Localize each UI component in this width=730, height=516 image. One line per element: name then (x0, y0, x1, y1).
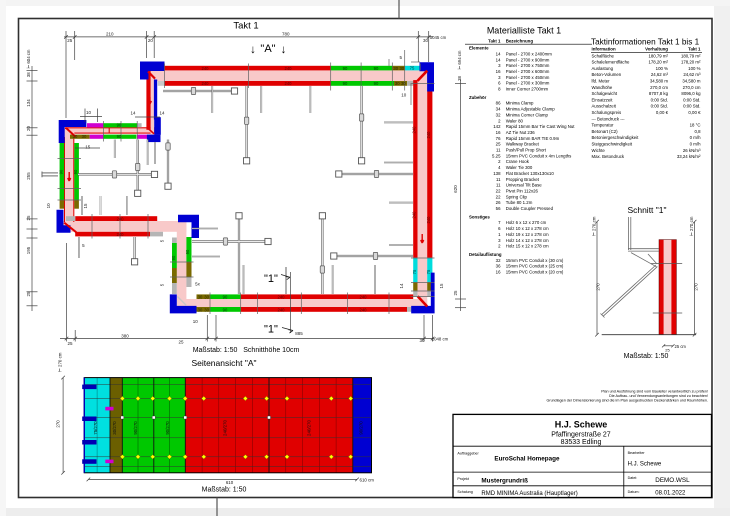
svg-text:270,0 cm: 270,0 cm (650, 85, 668, 90)
svg-text:1048 cm: 1048 cm (432, 337, 449, 342)
svg-text:10: 10 (193, 319, 199, 324)
svg-text:15mm PVC Conduit x (25 cm): 15mm PVC Conduit x (25 cm) (506, 264, 564, 269)
svg-text:76: 76 (496, 136, 501, 141)
svg-text:90: 90 (185, 249, 190, 254)
svg-text:DEMO.WSL: DEMO.WSL (655, 477, 690, 484)
svg-text:90: 90 (374, 81, 379, 86)
svg-text:Detailauflistung: Detailauflistung (469, 252, 502, 257)
svg-text:180,79 m²: 180,79 m² (648, 53, 668, 58)
svg-text:33,24 kN/m²: 33,24 kN/m² (677, 154, 701, 159)
svg-text:38: 38 (457, 76, 462, 81)
svg-text:Betonart (C2): Betonart (C2) (592, 129, 619, 134)
svg-text:16: 16 (496, 130, 501, 135)
svg-text:25: 25 (67, 38, 73, 43)
svg-text:38: 38 (26, 72, 31, 77)
svg-text:24,62 m³: 24,62 m³ (683, 72, 701, 77)
svg-text:Propping Bracket: Propping Bracket (506, 177, 540, 182)
svg-text:34,580 m: 34,580 m (682, 79, 700, 84)
svg-text:--- Betondruck ---: --- Betondruck --- (592, 116, 626, 121)
svg-text:0:00 Std.: 0:00 Std. (651, 97, 668, 102)
svg-text:780: 780 (282, 31, 290, 36)
svg-text:240: 240 (202, 81, 210, 86)
svg-text:11: 11 (496, 148, 501, 153)
svg-text:75: 75 (412, 269, 417, 274)
svg-text:Panel - 2700 x 750mm: Panel - 2700 x 750mm (506, 63, 550, 68)
svg-text:0:00 Std.: 0:00 Std. (683, 97, 700, 102)
svg-text:Plan und Ausführung sind vom B: Plan und Ausführung sind vom Bauleiter v… (601, 390, 708, 394)
svg-text:26 kN/m³: 26 kN/m³ (683, 148, 701, 153)
svg-text:30: 30 (204, 295, 209, 300)
svg-text:32: 32 (496, 258, 501, 263)
svg-text:Betoniergeschwindigkeit: Betoniergeschwindigkeit (592, 135, 640, 140)
svg-text:885: 885 (295, 331, 303, 336)
svg-text:240: 240 (412, 211, 417, 219)
svg-text:18 °C: 18 °C (690, 123, 701, 128)
svg-text:Bezeichnung: Bezeichnung (506, 39, 534, 44)
svg-text:240: 240 (426, 131, 431, 139)
svg-text:255: 255 (26, 172, 31, 180)
svg-text:240: 240 (117, 232, 125, 237)
svg-text:90/270: 90/270 (165, 421, 170, 435)
svg-text:Zubehör: Zubehör (469, 95, 487, 100)
svg-text:25: 25 (496, 142, 501, 147)
svg-text:30: 30 (82, 134, 87, 139)
svg-text:90: 90 (117, 134, 122, 139)
svg-text:Waler Tie 300: Waler Tie 300 (506, 165, 533, 170)
svg-text:25 cm: 25 cm (675, 344, 687, 349)
svg-text:270: 270 (56, 420, 61, 428)
svg-text:Holz 14 x 12 x 278 cm: Holz 14 x 12 x 278 cm (506, 238, 549, 243)
svg-text:⊢ 270 cm: ⊢ 270 cm (591, 216, 596, 236)
svg-text:142: 142 (493, 124, 501, 129)
svg-text:Holz 10 x 12 x 278 cm: Holz 10 x 12 x 278 cm (506, 226, 549, 231)
svg-text:36: 36 (496, 264, 501, 269)
svg-text:195: 195 (26, 246, 31, 254)
svg-text:Schalelementfläche: Schalelementfläche (592, 60, 630, 65)
svg-text:100 %: 100 % (656, 66, 668, 71)
svg-text:240/270: 240/270 (307, 420, 312, 436)
svg-text:30: 30 (419, 338, 425, 343)
svg-text:Walkway Bracket: Walkway Bracket (506, 142, 540, 147)
svg-text:15: 15 (83, 203, 88, 209)
svg-text:Panel - 2700 x 600mm: Panel - 2700 x 600mm (506, 69, 550, 74)
svg-text:Takt 1: Takt 1 (233, 20, 258, 31)
svg-text:25: 25 (665, 348, 670, 353)
svg-text:32: 32 (496, 112, 501, 117)
svg-text:240: 240 (412, 126, 417, 134)
svg-text:Auslastung: Auslastung (592, 66, 614, 71)
svg-text:Rapid 15mm BAR TIE 0.9m: Rapid 15mm BAR TIE 0.9m (506, 136, 560, 141)
svg-text:Rapid 15mm Bar Tie Cast Wing N: Rapid 15mm Bar Tie Cast Wing Nut (506, 124, 576, 129)
svg-text:25: 25 (67, 341, 73, 346)
svg-text:25: 25 (26, 215, 31, 221)
svg-text:15mm PVC Conduit x (30 cm): 15mm PVC Conduit x (30 cm) (506, 258, 564, 263)
svg-text:83533 Edling: 83533 Edling (561, 439, 602, 446)
svg-text:Panel - 2700 x 2400mm: Panel - 2700 x 2400mm (506, 51, 553, 56)
svg-text:100 %: 100 % (688, 66, 700, 71)
svg-text:30: 30 (395, 81, 400, 86)
svg-text:75: 75 (426, 269, 431, 274)
svg-text:↓: ↓ (281, 44, 287, 56)
svg-text:H.J. Schewe: H.J. Schewe (555, 420, 608, 430)
svg-text:H.J. Schewe: H.J. Schewe (628, 462, 662, 468)
svg-text:86: 86 (496, 101, 501, 106)
svg-text:10: 10 (86, 110, 92, 115)
svg-text:Projekt: Projekt (457, 477, 468, 481)
svg-text:14: 14 (496, 51, 501, 56)
svg-text:26: 26 (496, 200, 501, 205)
svg-text:240: 240 (202, 66, 210, 71)
svg-text:30: 30 (399, 66, 404, 71)
svg-text:Schalgewicht: Schalgewicht (592, 91, 618, 96)
svg-text:240: 240 (360, 295, 368, 300)
svg-text:16: 16 (496, 69, 501, 74)
svg-text:EuroSchal Homepage: EuroSchal Homepage (494, 456, 560, 463)
svg-text:14: 14 (496, 57, 501, 62)
svg-text:0 m/h: 0 m/h (690, 142, 701, 147)
svg-text:90: 90 (58, 169, 63, 174)
svg-text:Steiggeschwindigkeit: Steiggeschwindigkeit (592, 142, 633, 147)
svg-text:Bearbeiter: Bearbeiter (628, 451, 646, 455)
svg-text:180,79 m²: 180,79 m² (681, 53, 701, 58)
svg-text:Schalungspreis: Schalungspreis (592, 110, 623, 115)
svg-text:90: 90 (223, 307, 228, 312)
svg-text:Maßstab: 1:50: Maßstab: 1:50 (624, 353, 669, 360)
svg-text:14: 14 (399, 283, 404, 289)
svg-text:⊢ 270 cm: ⊢ 270 cm (58, 352, 63, 372)
svg-text:Einsatzzeit: Einsatzzeit (592, 97, 614, 102)
svg-text:134: 134 (26, 99, 31, 107)
svg-text:Panel - 2700 x 450mm: Panel - 2700 x 450mm (506, 75, 550, 80)
svg-text:56: 56 (496, 206, 501, 211)
svg-text:Flat Bracket 130x130x10: Flat Bracket 130x130x10 (506, 171, 555, 176)
svg-text:Vorhaltung: Vorhaltung (645, 47, 668, 52)
svg-text:Ausschalzeit: Ausschalzeit (592, 104, 617, 109)
svg-text:Maßstab: 1:50 Schnitthöhe 10: Maßstab: 1:50 Schnitthöhe 10cm (193, 347, 300, 354)
svg-text:30: 30 (73, 134, 78, 139)
svg-text:Spring Clip: Spring Clip (506, 194, 528, 199)
svg-text:lfd. Meter: lfd. Meter (592, 79, 611, 84)
svg-text:178,20 m²: 178,20 m² (648, 60, 668, 65)
svg-text:Tube 80 1.2m: Tube 80 1.2m (506, 200, 533, 205)
svg-text:11: 11 (496, 177, 501, 182)
svg-text:Sonstiges: Sonstiges (469, 214, 490, 219)
svg-text:Max. Betondruck: Max. Betondruck (592, 154, 625, 159)
svg-text:75: 75 (410, 66, 415, 71)
svg-text:20: 20 (148, 38, 154, 43)
svg-text:25: 25 (178, 340, 184, 345)
svg-text:90: 90 (171, 255, 176, 260)
svg-text:Push/Pull Prop Short: Push/Pull Prop Short (506, 148, 547, 153)
svg-text:Schalung: Schalung (457, 490, 472, 494)
svg-text:Inner Corner 2700mm: Inner Corner 2700mm (506, 87, 549, 92)
svg-text:10: 10 (401, 93, 407, 98)
svg-text:240: 240 (285, 66, 293, 71)
svg-text:↓: ↓ (250, 44, 256, 56)
svg-text:Seitenansicht "A": Seitenansicht "A" (191, 358, 256, 368)
svg-text:240: 240 (285, 81, 293, 86)
svg-text:Temperatur: Temperatur (592, 123, 615, 128)
svg-text:Pfaffingerstraße 27: Pfaffingerstraße 27 (551, 432, 611, 439)
svg-text:Maßstab: 1:50: Maßstab: 1:50 (202, 487, 247, 494)
svg-text:Schnitt "1": Schnitt "1" (627, 205, 666, 215)
svg-text:Panel - 2700 x 900mm: Panel - 2700 x 900mm (506, 57, 550, 62)
svg-text:Wandhöhe: Wandhöhe (592, 85, 613, 90)
svg-text:1045 cm: 1045 cm (430, 35, 447, 40)
svg-text:Information: Information (592, 47, 616, 52)
svg-text:Holz 19 x 12 x 278 cm: Holz 19 x 12 x 278 cm (506, 232, 549, 237)
svg-text:90: 90 (223, 295, 228, 300)
svg-text:20: 20 (26, 126, 31, 132)
svg-text:138: 138 (493, 171, 501, 176)
svg-text:22: 22 (496, 194, 501, 199)
svg-text:15mm PVC Conduit x 4m Lengths: 15mm PVC Conduit x 4m Lengths (506, 153, 572, 158)
svg-text:30: 30 (401, 81, 406, 86)
svg-text:240/270: 240/270 (223, 420, 228, 436)
svg-text:0,8: 0,8 (694, 129, 701, 134)
svg-text:22: 22 (496, 188, 501, 193)
svg-text:"A": "A" (260, 43, 275, 55)
svg-text:15mm PVC Conduit x (20 cm): 15mm PVC Conduit x (20 cm) (506, 270, 564, 275)
svg-text:⊢ 604 cm: ⊢ 604 cm (26, 49, 31, 68)
svg-text:Die Aufbau- und Verwendungsanl: Die Aufbau- und Verwendungsanleitungen s… (609, 394, 708, 398)
svg-text:380: 380 (121, 334, 129, 339)
svg-text:Taktinformationen Takt 1 bis: Taktinformationen Takt 1 bis 1 (591, 38, 700, 47)
svg-text:34: 34 (496, 107, 501, 112)
svg-text:Holz 6 x 12 x 270 cm: Holz 6 x 12 x 270 cm (506, 220, 547, 225)
svg-text:0:00 Std.: 0:00 Std. (683, 104, 700, 109)
svg-text:610: 610 (226, 480, 234, 485)
svg-text:90: 90 (343, 66, 348, 71)
svg-text:Datum:: Datum: (628, 490, 640, 494)
svg-text:Takt 1: Takt 1 (688, 47, 701, 52)
svg-text:Grundlagen der Dimensionierung: Grundlagen der Dimensionierung sind die … (546, 399, 708, 403)
svg-text:Universal Tilt Base: Universal Tilt Base (506, 183, 543, 188)
svg-text:Minima Corner Clamp: Minima Corner Clamp (506, 112, 549, 117)
svg-text:Waler 80: Waler 80 (506, 118, 524, 123)
svg-text:90: 90 (374, 66, 379, 71)
svg-text:Double Coupler Pressed: Double Coupler Pressed (506, 206, 554, 211)
svg-text:270,0 cm: 270,0 cm (683, 85, 701, 90)
svg-text:240: 240 (278, 307, 286, 312)
svg-text:Beton-Volumen: Beton-Volumen (592, 72, 622, 77)
svg-text:30: 30 (393, 66, 398, 71)
svg-text:Elemente: Elemente (469, 46, 489, 51)
svg-text:Takt 1: Takt 1 (488, 39, 501, 44)
svg-text:RMD MINIMA Australia (Hauptlag: RMD MINIMA Australia (Hauptlager) (481, 491, 577, 497)
svg-text:178,20 m²: 178,20 m² (681, 60, 701, 65)
svg-text:AZ Tie Nut 236: AZ Tie Nut 236 (506, 130, 536, 135)
svg-text:15: 15 (85, 145, 91, 150)
svg-text:90: 90 (117, 123, 122, 128)
svg-text:90/270: 90/270 (133, 421, 138, 435)
svg-text:15: 15 (439, 283, 444, 289)
svg-text:240: 240 (117, 216, 125, 221)
svg-text:90: 90 (73, 169, 78, 174)
svg-text:⊢ 694 cm: ⊢ 694 cm (457, 50, 462, 69)
svg-text:⊢ 270 cm: ⊢ 270 cm (689, 216, 694, 236)
svg-text:0,00 €: 0,00 € (688, 110, 701, 115)
svg-text:30/270: 30/270 (112, 421, 117, 435)
svg-text:240: 240 (278, 295, 286, 300)
svg-text:Crane Hook: Crane Hook (506, 159, 530, 164)
svg-text:Holz 15 x 12 x 278 cm: Holz 15 x 12 x 278 cm (506, 244, 549, 249)
svg-text:90: 90 (343, 81, 348, 86)
svg-text:08.01.2022: 08.01.2022 (655, 491, 686, 497)
svg-text:Materialliste Takt 1: Materialliste Takt 1 (487, 26, 561, 36)
svg-text:Schalfläche: Schalfläche (592, 53, 615, 58)
svg-text:8707,8 kg: 8707,8 kg (649, 91, 669, 96)
svg-text:Panel - 2700 x 300mm: Panel - 2700 x 300mm (506, 81, 550, 86)
svg-text:14: 14 (159, 111, 165, 116)
svg-text:Auftraggeber: Auftraggeber (457, 452, 479, 456)
svg-text:5.25: 5.25 (492, 153, 501, 158)
svg-text:0,00 €: 0,00 € (656, 110, 669, 115)
svg-text:210: 210 (106, 31, 114, 36)
svg-text:16: 16 (496, 270, 501, 275)
svg-text:30: 30 (423, 38, 429, 43)
svg-text:270: 270 (693, 283, 698, 291)
svg-text:"1": "1" (264, 324, 278, 336)
svg-text:0:00 Std.: 0:00 Std. (651, 104, 668, 109)
svg-text:34,580 m: 34,580 m (650, 79, 668, 84)
svg-text:Minima Adjustable Clamp: Minima Adjustable Clamp (506, 107, 556, 112)
svg-text:Minima Clamp: Minima Clamp (506, 101, 534, 106)
svg-text:30: 30 (204, 307, 209, 312)
svg-text:11: 11 (496, 183, 501, 188)
svg-text:Pivot Pin 112x26: Pivot Pin 112x26 (506, 188, 539, 193)
svg-text:5x: 5x (195, 282, 201, 287)
svg-text:240: 240 (426, 216, 431, 224)
svg-text:Wichte: Wichte (592, 148, 606, 153)
svg-text:610 cm: 610 cm (360, 478, 375, 483)
svg-text:75/270: 75/270 (93, 421, 98, 435)
svg-text:"1": "1" (264, 273, 278, 285)
svg-text:14: 14 (130, 111, 136, 116)
svg-text:25: 25 (26, 291, 31, 297)
svg-text:240: 240 (360, 307, 368, 312)
svg-text:270: 270 (596, 283, 601, 291)
svg-text:25: 25 (453, 290, 458, 296)
svg-text:Mustergrundriß: Mustergrundriß (481, 478, 528, 485)
svg-text:30: 30 (198, 307, 203, 312)
svg-text:24,62 m³: 24,62 m³ (651, 72, 669, 77)
svg-text:30: 30 (198, 295, 203, 300)
svg-text:Datei:: Datei: (628, 476, 638, 480)
svg-text:10: 10 (46, 203, 51, 209)
svg-text:90/270: 90/270 (359, 421, 364, 435)
svg-text:620: 620 (453, 185, 458, 193)
svg-text:0 m/h: 0 m/h (690, 135, 701, 140)
svg-text:8096,0 kg: 8096,0 kg (681, 91, 701, 96)
